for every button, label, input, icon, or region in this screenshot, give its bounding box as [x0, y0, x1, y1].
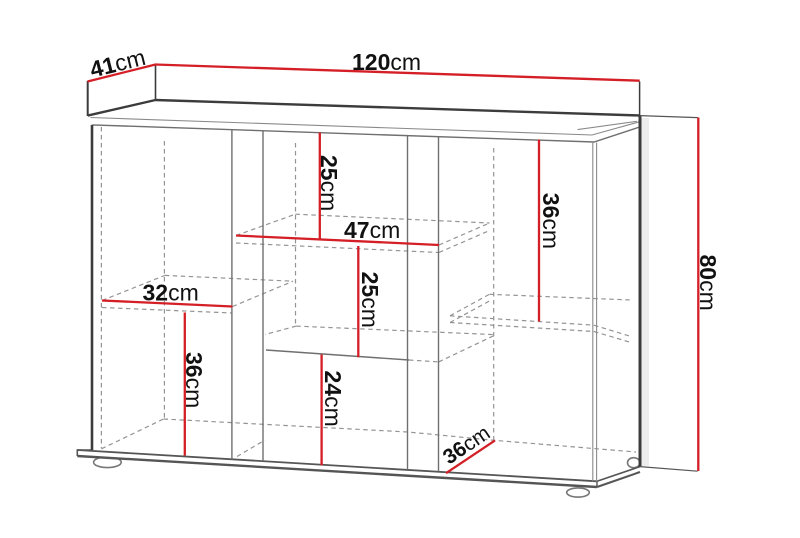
svg-text:24cm: 24cm: [320, 371, 346, 427]
svg-text:32cm: 32cm: [143, 280, 199, 306]
svg-text:25cm: 25cm: [357, 272, 383, 328]
svg-text:36cm: 36cm: [181, 352, 207, 408]
svg-text:80cm: 80cm: [695, 255, 721, 311]
svg-text:120cm: 120cm: [352, 49, 421, 75]
svg-text:25cm: 25cm: [316, 155, 342, 211]
svg-text:36cm: 36cm: [538, 193, 564, 249]
svg-text:47cm: 47cm: [344, 217, 400, 243]
